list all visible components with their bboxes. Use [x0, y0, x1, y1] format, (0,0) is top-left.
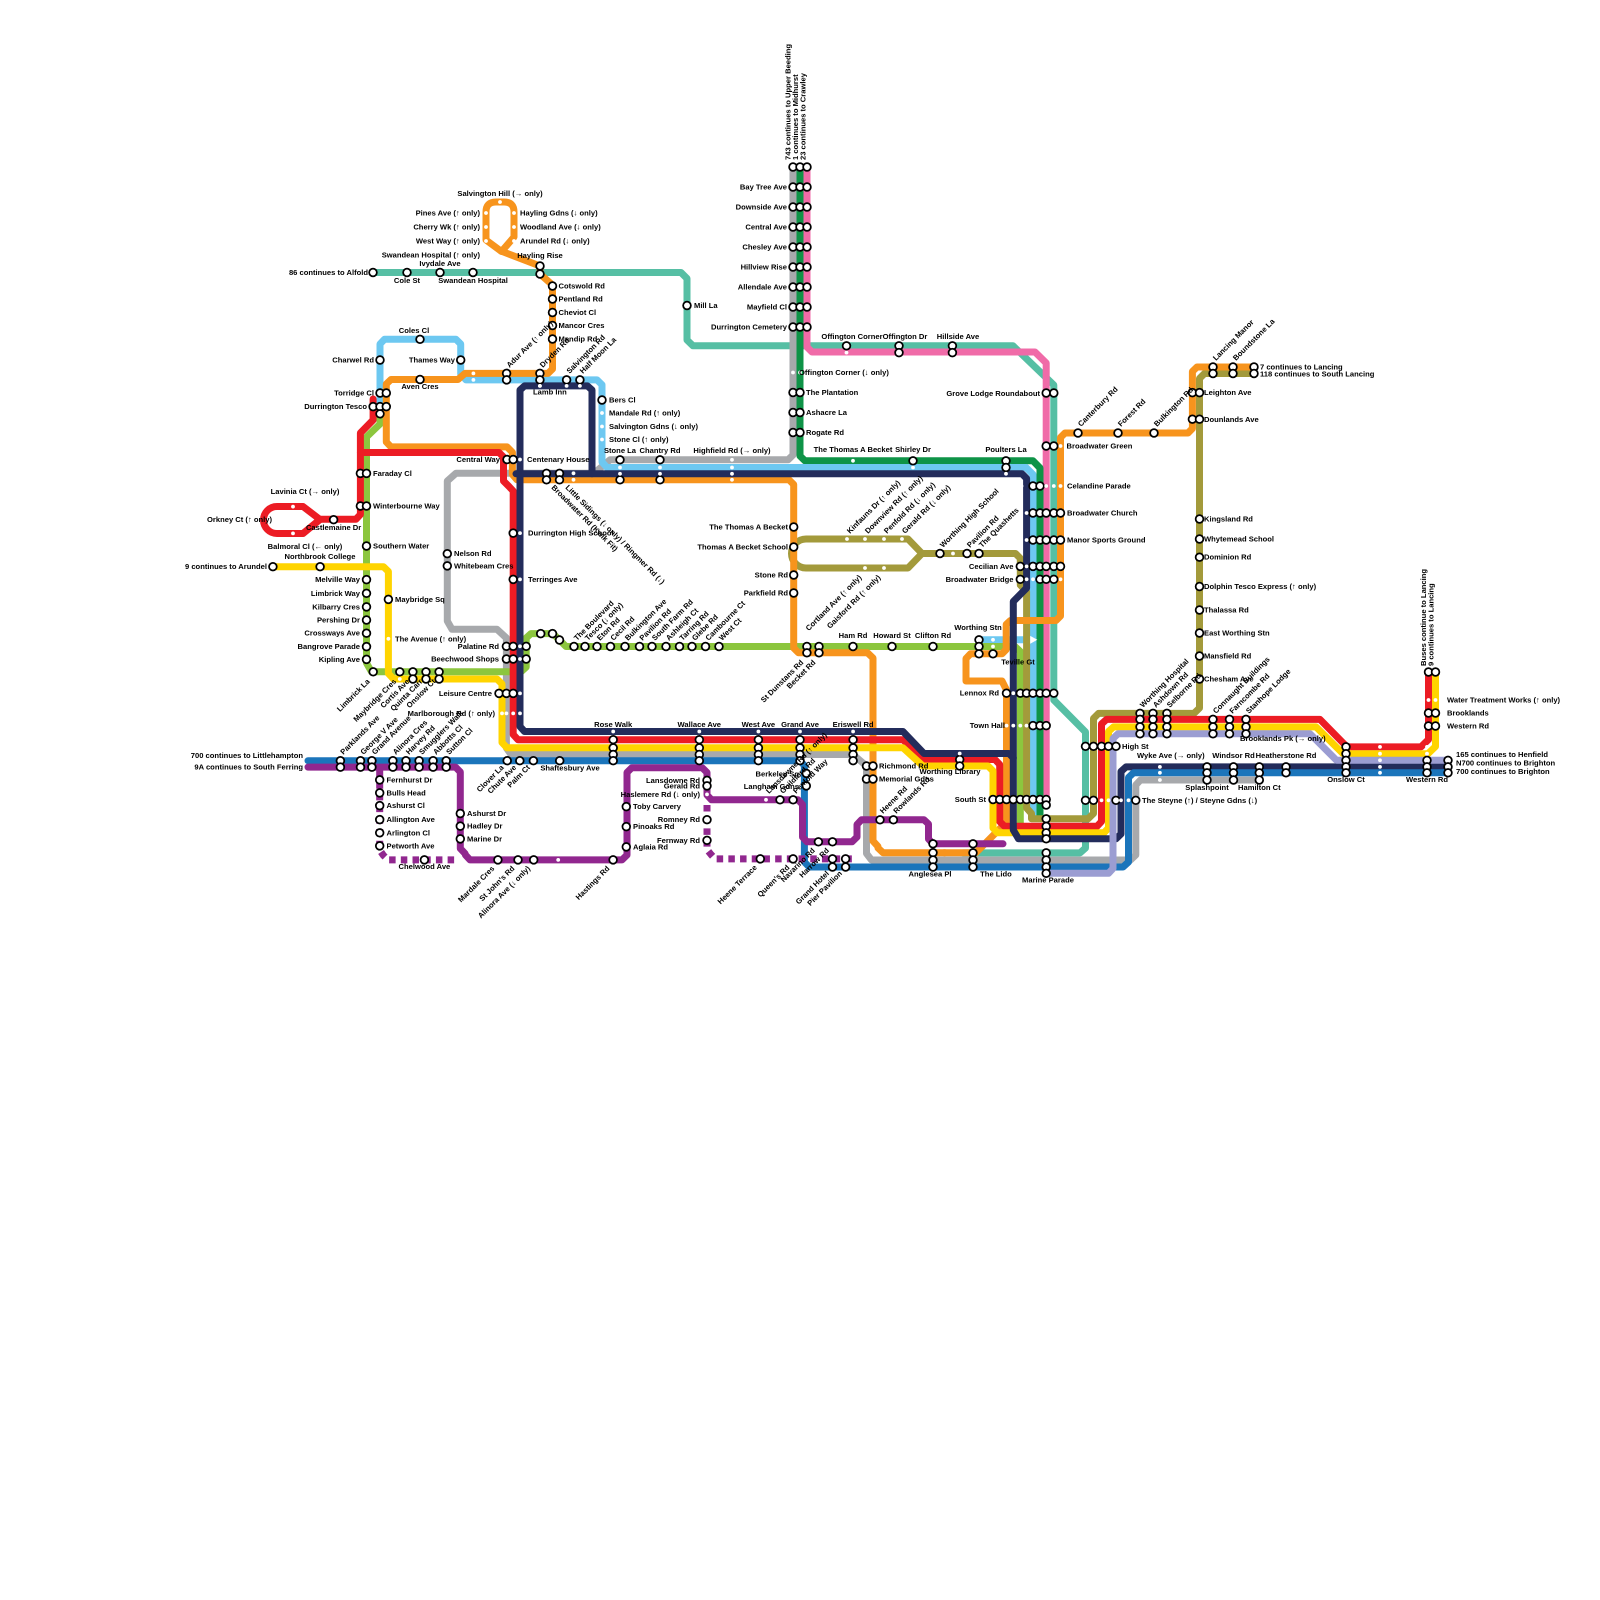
svg-text:118 continues to South Lancing: 118 continues to South Lancing — [1260, 370, 1375, 379]
svg-text:Offington Corner: Offington Corner — [821, 332, 882, 341]
svg-text:Heatherstone Rd: Heatherstone Rd — [1256, 751, 1317, 760]
svg-text:Bulls Head: Bulls Head — [387, 788, 427, 797]
svg-text:The Lido: The Lido — [980, 870, 1012, 879]
svg-text:Anglesea Pl: Anglesea Pl — [908, 870, 951, 879]
svg-text:Onslow Ct: Onslow Ct — [1327, 775, 1365, 784]
svg-text:Northbrook College: Northbrook College — [285, 552, 356, 561]
svg-text:Cole St: Cole St — [394, 276, 421, 285]
svg-text:Balmoral Cl (← only): Balmoral Cl (← only) — [268, 542, 343, 551]
svg-text:Ham Rd: Ham Rd — [839, 631, 868, 640]
svg-text:Windsor Rd: Windsor Rd — [1212, 751, 1255, 760]
svg-text:East Worthing Stn: East Worthing Stn — [1204, 629, 1270, 638]
svg-text:Ashurst Dr: Ashurst Dr — [467, 809, 506, 818]
svg-text:Hillside Ave: Hillside Ave — [937, 332, 980, 341]
svg-text:Splashpoint: Splashpoint — [1185, 783, 1229, 792]
svg-text:Broadwater Church: Broadwater Church — [1067, 509, 1138, 518]
svg-text:Highfield Rd (→ only): Highfield Rd (→ only) — [693, 446, 771, 455]
svg-text:Ivydale Ave: Ivydale Ave — [419, 259, 460, 268]
svg-text:700 continues to Brighton: 700 continues to Brighton — [1456, 767, 1550, 776]
svg-text:Toby Carvery: Toby Carvery — [633, 802, 682, 811]
svg-text:Faraday Cl: Faraday Cl — [373, 469, 412, 478]
svg-text:Rogate Rd: Rogate Rd — [806, 428, 844, 437]
svg-text:Stone Rd: Stone Rd — [755, 571, 789, 580]
svg-text:Pines Ave (↑ only): Pines Ave (↑ only) — [416, 209, 481, 218]
svg-text:Pinoaks Rd: Pinoaks Rd — [633, 822, 675, 831]
svg-text:Dolphin Tesco Express (↑ only): Dolphin Tesco Express (↑ only) — [1204, 582, 1317, 591]
svg-text:Whitebeam Cres: Whitebeam Cres — [454, 562, 514, 571]
svg-text:Ashurst Cl: Ashurst Cl — [387, 801, 425, 810]
svg-text:Palatine Rd: Palatine Rd — [458, 642, 500, 651]
svg-text:Marine Parade: Marine Parade — [1022, 876, 1074, 885]
svg-text:Wyke Ave (→ only): Wyke Ave (→ only) — [1137, 751, 1205, 760]
svg-text:The Thomas A Becket: The Thomas A Becket — [814, 445, 893, 454]
svg-text:Cotswold Rd: Cotswold Rd — [559, 282, 606, 291]
svg-text:Haslemere Rd (↓ only): Haslemere Rd (↓ only) — [621, 790, 701, 799]
svg-text:Salvington Hill (→ only): Salvington Hill (→ only) — [457, 189, 543, 198]
svg-text:Dominion Rd: Dominion Rd — [1204, 553, 1252, 562]
svg-text:The Steyne (↑) / Steyne Gdns (: The Steyne (↑) / Steyne Gdns (↓) — [1142, 796, 1258, 805]
svg-text:Eriswell Rd: Eriswell Rd — [833, 720, 874, 729]
svg-text:Parkfield Rd: Parkfield Rd — [744, 589, 789, 598]
svg-text:Cecilian Ave: Cecilian Ave — [969, 562, 1014, 571]
svg-text:West Way (↑ only): West Way (↑ only) — [416, 237, 481, 246]
svg-text:9 continues to Arundel: 9 continues to Arundel — [185, 562, 267, 571]
svg-text:Poulters La: Poulters La — [985, 445, 1027, 454]
svg-text:Allendale Ave: Allendale Ave — [738, 283, 787, 292]
svg-text:South St: South St — [955, 795, 987, 804]
svg-text:Broadwater Green: Broadwater Green — [1067, 442, 1133, 451]
svg-text:Grand Ave: Grand Ave — [781, 720, 819, 729]
svg-text:Orkney Ct (↑ only): Orkney Ct (↑ only) — [207, 515, 272, 524]
svg-text:Bay Tree Ave: Bay Tree Ave — [740, 183, 787, 192]
svg-text:Hadley Dr: Hadley Dr — [467, 822, 502, 831]
svg-text:High St: High St — [1122, 742, 1149, 751]
svg-text:Downside Ave: Downside Ave — [736, 203, 787, 212]
svg-text:Lamb Inn: Lamb Inn — [533, 388, 567, 397]
svg-text:Richmond Rd: Richmond Rd — [879, 762, 929, 771]
svg-text:Clifton Rd: Clifton Rd — [915, 631, 952, 640]
svg-text:Torridge Cl: Torridge Cl — [334, 389, 374, 398]
svg-text:Coles Cl: Coles Cl — [399, 326, 429, 335]
svg-text:Howard St: Howard St — [873, 631, 911, 640]
svg-text:Chantry Rd: Chantry Rd — [640, 446, 681, 455]
svg-text:Centenary House: Centenary House — [527, 455, 589, 464]
svg-text:Brooklands Pk (→ only): Brooklands Pk (→ only) — [1240, 734, 1326, 743]
svg-text:Chesham Ave: Chesham Ave — [1204, 675, 1254, 684]
svg-text:Charwel Rd: Charwel Rd — [332, 356, 374, 365]
svg-text:Western Rd: Western Rd — [1406, 775, 1448, 784]
svg-text:Pentland Rd: Pentland Rd — [559, 295, 604, 304]
svg-text:Bangrove Parade: Bangrove Parade — [298, 642, 360, 651]
svg-text:West Ave: West Ave — [742, 720, 775, 729]
svg-text:Mill La: Mill La — [694, 301, 718, 310]
svg-text:Water Treatment Works (↑ only): Water Treatment Works (↑ only) — [1447, 696, 1561, 705]
svg-text:Wallace Ave: Wallace Ave — [678, 720, 721, 729]
svg-text:Brooklands: Brooklands — [1447, 709, 1489, 718]
svg-text:The Plantation: The Plantation — [806, 388, 859, 397]
svg-text:Chelwood Ave: Chelwood Ave — [399, 862, 451, 871]
svg-text:Marine Dr: Marine Dr — [467, 834, 502, 843]
svg-text:Hillview Rise: Hillview Rise — [741, 263, 787, 272]
svg-text:Arlington Cl: Arlington Cl — [387, 828, 430, 837]
svg-text:Whytemead School: Whytemead School — [1204, 535, 1274, 544]
svg-text:Thalassa Rd: Thalassa Rd — [1204, 606, 1249, 615]
svg-text:Swandean Hospital (↑ only): Swandean Hospital (↑ only) — [382, 251, 481, 260]
svg-text:Arundel Rd (↓ only): Arundel Rd (↓ only) — [520, 237, 590, 246]
svg-text:Terringes Ave: Terringes Ave — [528, 575, 578, 584]
svg-text:Hayling Rise: Hayling Rise — [517, 251, 563, 260]
svg-text:Kilbarry Cres: Kilbarry Cres — [312, 602, 360, 611]
svg-text:Allington Ave: Allington Ave — [387, 815, 435, 824]
svg-text:Hayling Gdns (↓ only): Hayling Gdns (↓ only) — [520, 209, 598, 218]
svg-text:Mayfield Cl: Mayfield Cl — [747, 303, 787, 312]
svg-text:700 continues to Littlehampton: 700 continues to Littlehampton — [191, 751, 304, 760]
svg-text:Broadwater Bridge: Broadwater Bridge — [946, 575, 1014, 584]
svg-text:Town Hall: Town Hall — [970, 721, 1005, 730]
svg-text:Shirley Dr: Shirley Dr — [895, 445, 931, 454]
svg-text:Pershing Dr: Pershing Dr — [317, 616, 360, 625]
svg-text:Bers Cl: Bers Cl — [609, 396, 636, 405]
svg-text:Central Way: Central Way — [456, 455, 500, 464]
svg-text:Kingsland Rd: Kingsland Rd — [1204, 515, 1253, 524]
svg-text:Offington Dr: Offington Dr — [883, 332, 928, 341]
svg-text:Western Rd: Western Rd — [1447, 722, 1489, 731]
svg-text:Aven Cres: Aven Cres — [401, 382, 438, 391]
svg-text:Offington Corner (↓ only): Offington Corner (↓ only) — [799, 368, 889, 377]
svg-text:Central Ave: Central Ave — [745, 223, 787, 232]
svg-text:The Avenue (↑ only): The Avenue (↑ only) — [395, 634, 467, 643]
svg-text:Durrington Tesco: Durrington Tesco — [304, 402, 367, 411]
svg-text:Ashacre La: Ashacre La — [806, 408, 848, 417]
svg-text:Manor Sports Ground: Manor Sports Ground — [1067, 536, 1146, 545]
svg-text:Leighton Ave: Leighton Ave — [1204, 388, 1252, 397]
svg-text:Lavinia Ct (→ only): Lavinia Ct (→ only) — [271, 487, 340, 496]
svg-text:Hamilton Ct: Hamilton Ct — [1238, 783, 1281, 792]
svg-text:Melville Way: Melville Way — [315, 575, 361, 584]
svg-text:Nelson Rd: Nelson Rd — [454, 549, 492, 558]
svg-text:Stone La: Stone La — [604, 446, 637, 455]
svg-text:86 continues to Alfold: 86 continues to Alfold — [289, 268, 368, 277]
svg-text:Grove Lodge Roundabout: Grove Lodge Roundabout — [946, 389, 1040, 398]
svg-text:Lennox Rd: Lennox Rd — [960, 689, 1000, 698]
svg-text:Woodland Ave (↓ only): Woodland Ave (↓ only) — [520, 223, 601, 232]
svg-text:Limbrick Way: Limbrick Way — [311, 589, 361, 598]
svg-text:Rose Walk: Rose Walk — [594, 720, 633, 729]
svg-text:Mancor Cres: Mancor Cres — [559, 321, 605, 330]
svg-text:The Thomas A Becket: The Thomas A Becket — [709, 523, 788, 532]
svg-text:Beechwood Shops: Beechwood Shops — [431, 655, 499, 664]
svg-text:Teville Gt: Teville Gt — [1001, 658, 1035, 667]
svg-text:Mandale Rd (↑ only): Mandale Rd (↑ only) — [609, 409, 681, 418]
svg-text:Chesley Ave: Chesley Ave — [742, 243, 787, 252]
svg-text:Petworth Ave: Petworth Ave — [387, 841, 435, 850]
svg-text:Fernhurst Dr: Fernhurst Dr — [387, 775, 433, 784]
svg-text:Aglaia Rd: Aglaia Rd — [633, 842, 668, 851]
svg-text:Dounlands Ave: Dounlands Ave — [1204, 415, 1259, 424]
svg-text:Winterbourne Way: Winterbourne Way — [373, 502, 441, 511]
svg-text:Cheviot Cl: Cheviot Cl — [559, 308, 597, 317]
svg-text:Durrington Cemetery: Durrington Cemetery — [711, 323, 788, 332]
svg-text:Salvington Gdns (↓ only): Salvington Gdns (↓ only) — [609, 422, 698, 431]
svg-text:23 continues to Crawley: 23 continues to Crawley — [799, 72, 808, 160]
svg-text:Swandean Hospital: Swandean Hospital — [438, 276, 508, 285]
svg-text:Southern Water: Southern Water — [373, 542, 429, 551]
svg-text:Mansfield Rd: Mansfield Rd — [1204, 652, 1252, 661]
svg-text:9A continues to South Ferring: 9A continues to South Ferring — [194, 763, 303, 772]
svg-text:Worthing Stn: Worthing Stn — [954, 623, 1002, 632]
svg-text:Cherry Wk (↑ only): Cherry Wk (↑ only) — [413, 223, 480, 232]
svg-text:Thomas A Becket School: Thomas A Becket School — [697, 543, 788, 552]
svg-text:Crossways Ave: Crossways Ave — [304, 629, 360, 638]
svg-text:Leisure Centre: Leisure Centre — [439, 689, 492, 698]
svg-text:Stone Cl (↑ only): Stone Cl (↑ only) — [609, 435, 669, 444]
svg-text:Celandine Parade: Celandine Parade — [1067, 482, 1131, 491]
svg-text:Maybridge Sq: Maybridge Sq — [395, 595, 445, 604]
svg-text:Castlemaine Dr: Castlemaine Dr — [306, 523, 361, 532]
svg-text:Thames Way: Thames Way — [409, 356, 456, 365]
svg-text:9 continues to Lancing: 9 continues to Lancing — [1427, 583, 1436, 666]
svg-text:Shaftesbury Ave: Shaftesbury Ave — [540, 764, 599, 773]
svg-text:Kipling Ave: Kipling Ave — [319, 655, 360, 664]
